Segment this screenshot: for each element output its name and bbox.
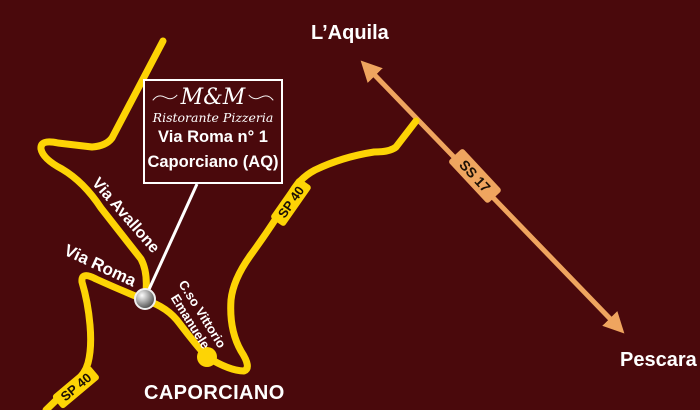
location-marker [135,289,155,309]
restaurant-address-street: Via Roma n° 1 [158,125,268,150]
town-name: CAPORCIANO [144,382,285,405]
restaurant-address-city: Caporciano (AQ) [147,150,278,175]
restaurant-info-box: M&M Ristorante Pizzeria Via Roma n° 1 Ca… [143,79,283,184]
flourish-icon [248,91,274,105]
restaurant-logo-text: M&M [181,87,246,109]
flourish-icon [152,91,178,105]
destination-laquila: L’Aquila [311,22,389,45]
restaurant-subtitle: Ristorante Pizzeria [153,110,274,125]
directions-map: L’Aquila Pescara CAPORCIANO Via Avallone… [0,0,700,410]
restaurant-logo: M&M [152,87,275,109]
destination-pescara: Pescara [620,349,697,372]
